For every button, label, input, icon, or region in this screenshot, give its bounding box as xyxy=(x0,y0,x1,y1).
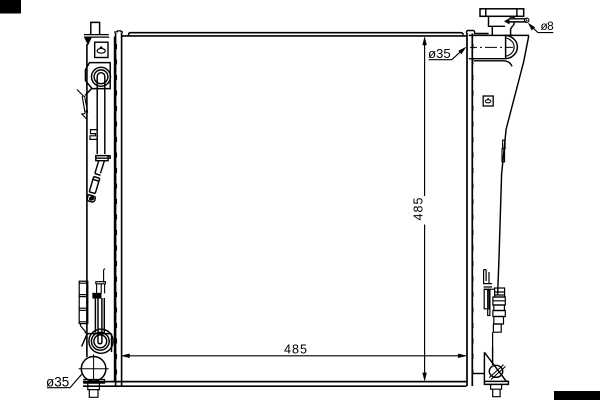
svg-text:485: 485 xyxy=(284,342,307,356)
svg-text:ø8: ø8 xyxy=(541,19,555,33)
svg-text:ø35: ø35 xyxy=(46,374,69,389)
svg-text:485: 485 xyxy=(412,197,426,220)
svg-text:ø35: ø35 xyxy=(428,46,451,61)
